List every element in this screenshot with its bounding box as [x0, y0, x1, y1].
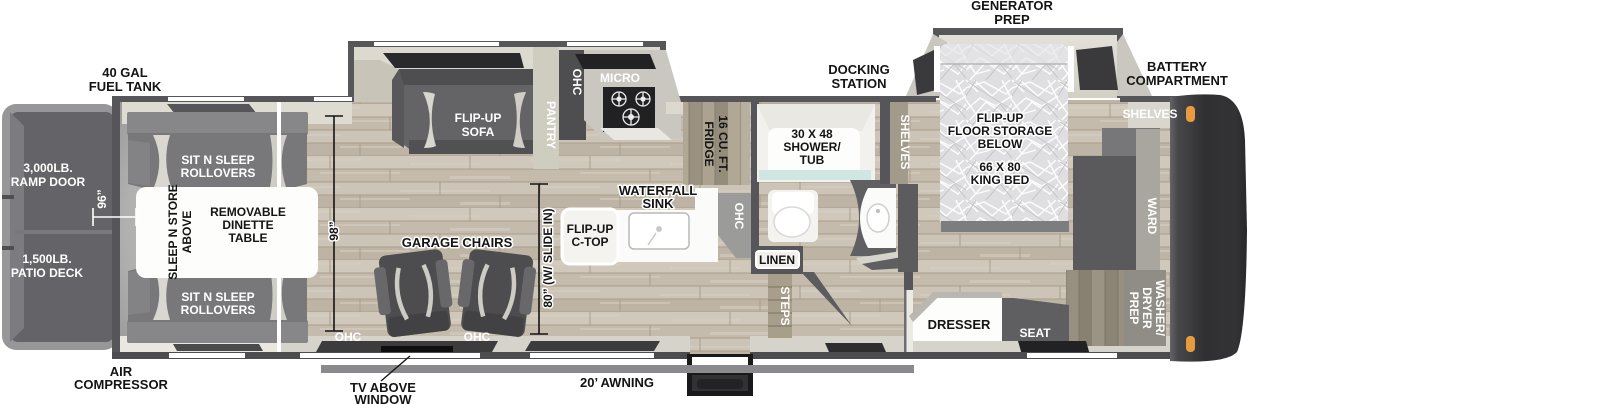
svg-text:WASHER/: WASHER/ — [1153, 280, 1167, 337]
svg-text:1,500LB.: 1,500LB. — [22, 252, 71, 266]
svg-text:SOFA: SOFA — [462, 125, 495, 139]
svg-text:SHELVES: SHELVES — [898, 114, 912, 169]
svg-text:SEAT: SEAT — [1019, 326, 1051, 340]
svg-text:SINK: SINK — [642, 196, 674, 211]
svg-text:FLIP-UP: FLIP-UP — [567, 222, 614, 236]
svg-text:ABOVE: ABOVE — [180, 211, 194, 254]
svg-text:DOCKING: DOCKING — [828, 62, 889, 77]
svg-text:SIT N SLEEP: SIT N SLEEP — [181, 290, 254, 304]
svg-text:OHC: OHC — [464, 330, 491, 344]
svg-text:BELOW: BELOW — [978, 137, 1023, 151]
svg-text:WINDOW: WINDOW — [354, 392, 412, 404]
svg-text:COMPRESSOR: COMPRESSOR — [74, 377, 169, 392]
svg-text:ROLLOVERS: ROLLOVERS — [181, 303, 256, 317]
svg-text:DINETTE: DINETTE — [222, 218, 273, 232]
svg-text:PANTRY: PANTRY — [544, 101, 558, 149]
svg-text:80” (W/ SLIDE IN): 80” (W/ SLIDE IN) — [541, 208, 555, 307]
svg-text:PATIO DECK: PATIO DECK — [11, 266, 84, 280]
svg-text:BATTERY: BATTERY — [1147, 59, 1207, 74]
svg-text:MICRO: MICRO — [600, 71, 640, 85]
svg-text:TUB: TUB — [800, 153, 825, 167]
svg-text:66 X 80: 66 X 80 — [979, 160, 1021, 174]
svg-text:OHC: OHC — [732, 203, 746, 230]
svg-text:WARD: WARD — [1145, 198, 1159, 235]
svg-text:ROLLOVERS: ROLLOVERS — [181, 166, 256, 180]
svg-text:FLIP-UP: FLIP-UP — [455, 111, 502, 125]
svg-text:LINEN: LINEN — [759, 253, 795, 267]
svg-text:PREP: PREP — [994, 12, 1030, 27]
svg-text:SLEEP N STORE: SLEEP N STORE — [166, 184, 180, 280]
svg-text:FLOOR STORAGE: FLOOR STORAGE — [948, 124, 1052, 138]
svg-text:FUEL TANK: FUEL TANK — [89, 79, 162, 94]
svg-text:STATION: STATION — [831, 76, 886, 91]
svg-text:40 GAL: 40 GAL — [102, 65, 148, 80]
svg-text:20’ AWNING: 20’ AWNING — [580, 375, 654, 390]
svg-text:SIT N SLEEP: SIT N SLEEP — [181, 153, 254, 167]
svg-text:3,000LB.: 3,000LB. — [23, 161, 72, 175]
svg-text:30 X 48: 30 X 48 — [791, 127, 833, 141]
svg-text:C-TOP: C-TOP — [571, 235, 608, 249]
svg-text:16 CU. FT.: 16 CU. FT. — [716, 115, 730, 172]
svg-text:RAMP DOOR: RAMP DOOR — [11, 175, 86, 189]
svg-text:DRYER: DRYER — [1140, 287, 1154, 329]
svg-text:SHOWER/: SHOWER/ — [783, 140, 841, 154]
svg-text:SHELVES: SHELVES — [1122, 107, 1177, 121]
svg-text:DRESSER: DRESSER — [928, 317, 991, 332]
svg-text:FRIDGE: FRIDGE — [702, 121, 716, 166]
svg-text:OHC: OHC — [335, 330, 362, 344]
svg-text:GARAGE CHAIRS: GARAGE CHAIRS — [402, 235, 513, 250]
svg-text:FLIP-UP: FLIP-UP — [977, 111, 1024, 125]
svg-text:98”: 98” — [327, 221, 341, 240]
svg-text:COMPARTMENT: COMPARTMENT — [1126, 73, 1228, 88]
svg-text:TABLE: TABLE — [228, 231, 267, 245]
svg-text:KING BED: KING BED — [971, 173, 1030, 187]
svg-text:OHC: OHC — [570, 69, 584, 96]
svg-text:REMOVABLE: REMOVABLE — [210, 205, 286, 219]
svg-text:PREP: PREP — [1127, 292, 1141, 325]
svg-text:96”: 96” — [95, 189, 109, 208]
svg-text:STEPS: STEPS — [778, 286, 792, 325]
